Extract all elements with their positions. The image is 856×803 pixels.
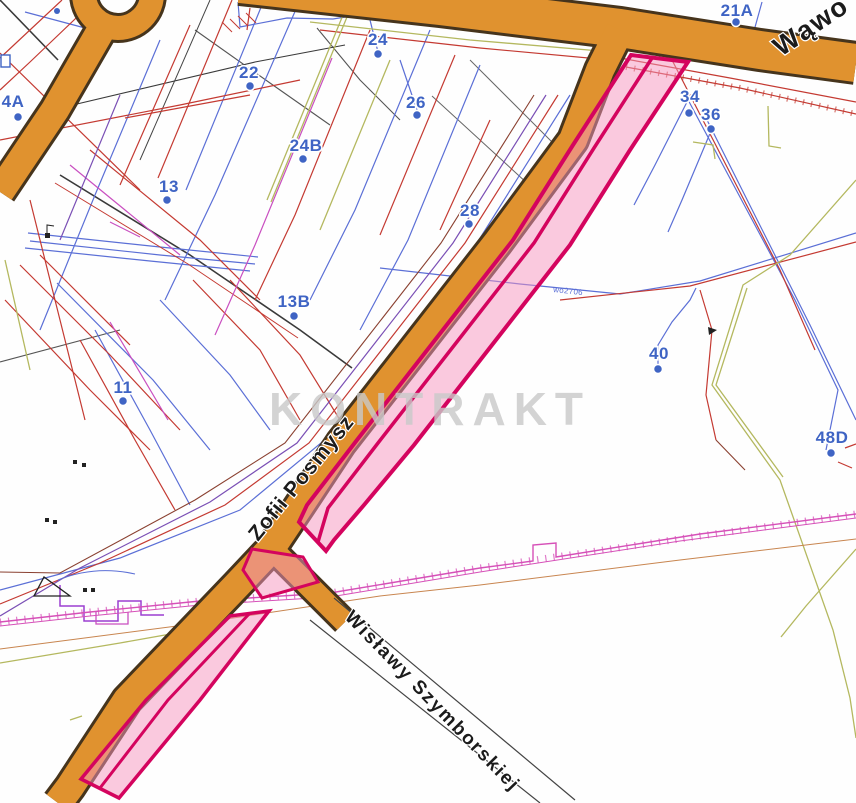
svg-text:4A: 4A [2,92,25,111]
cadastral-map-canvas[interactable]: KONTRAKT Zofii Posmysz Wisławy Szymborsk… [0,0,856,803]
svg-text:28: 28 [460,201,480,220]
map-svg: KONTRAKT Zofii Posmysz Wisławy Szymborsk… [0,0,856,803]
svg-text:26: 26 [406,93,426,112]
hydrant-dot-icon [54,8,60,14]
address-dot-icon [654,365,663,374]
svg-text:22: 22 [239,63,259,82]
address-dot-icon [374,50,383,59]
address-dot-icon [299,155,308,164]
svg-text:24B: 24B [290,136,323,155]
address-dot-icon [827,449,836,458]
address-dot-icon [290,312,299,321]
svg-text:13B: 13B [278,292,311,311]
address-dot-icon [163,196,172,205]
address-dot-icon [707,125,716,134]
address-dot-icon [465,220,474,229]
svg-text:13: 13 [159,177,179,196]
address-dot-icon [14,113,23,122]
address-dot-icon [119,397,128,406]
address-dot-icon [732,18,741,27]
svg-text:11: 11 [114,378,133,397]
svg-text:36: 36 [701,105,721,124]
svg-text:48D: 48D [816,428,849,447]
svg-text:40: 40 [649,344,669,363]
svg-text:24: 24 [368,30,388,49]
address-dot-icon [413,111,422,120]
map-marker-icon [1,55,10,67]
address-dot-icon [685,109,694,118]
svg-text:34: 34 [680,87,700,106]
address-dot-icon [246,82,255,91]
watermark: KONTRAKT [269,383,591,435]
